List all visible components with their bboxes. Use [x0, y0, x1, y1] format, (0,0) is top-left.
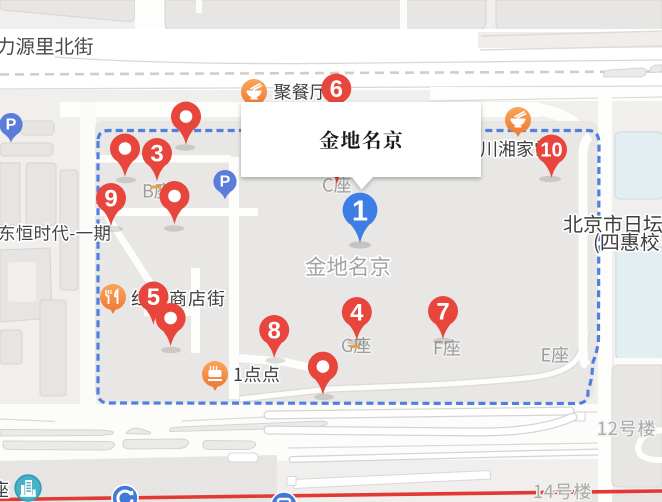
svg-text:5: 5	[147, 284, 160, 311]
svg-text:1: 1	[352, 195, 368, 227]
svg-text:3: 3	[150, 141, 163, 168]
svg-text:10: 10	[540, 140, 562, 162]
svg-text:9: 9	[104, 186, 117, 213]
svg-text:7: 7	[436, 299, 449, 326]
svg-text:6: 6	[330, 76, 343, 103]
svg-text:4: 4	[350, 300, 364, 327]
svg-text:8: 8	[268, 318, 281, 345]
